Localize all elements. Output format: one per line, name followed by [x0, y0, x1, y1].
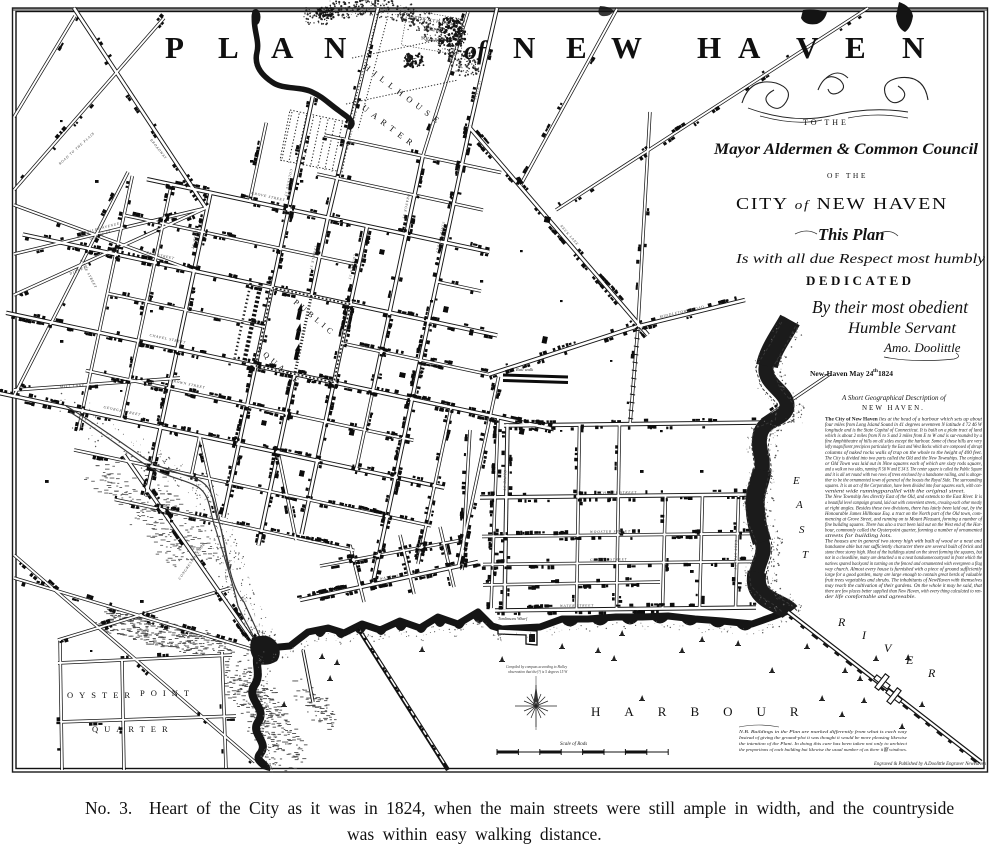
svg-text:OLIVE ST: OLIVE ST: [502, 470, 507, 492]
svg-text:WOOSTER STREET: WOOSTER STREET: [590, 529, 631, 534]
svg-text:Tomlinsons Wharf: Tomlinsons Wharf: [498, 616, 528, 621]
svg-text:CHAPEL STREET: CHAPEL STREET: [600, 490, 637, 495]
svg-text:GREENE STREET: GREENE STREET: [590, 557, 628, 562]
svg-text:WATER STREET: WATER STREET: [560, 603, 594, 608]
